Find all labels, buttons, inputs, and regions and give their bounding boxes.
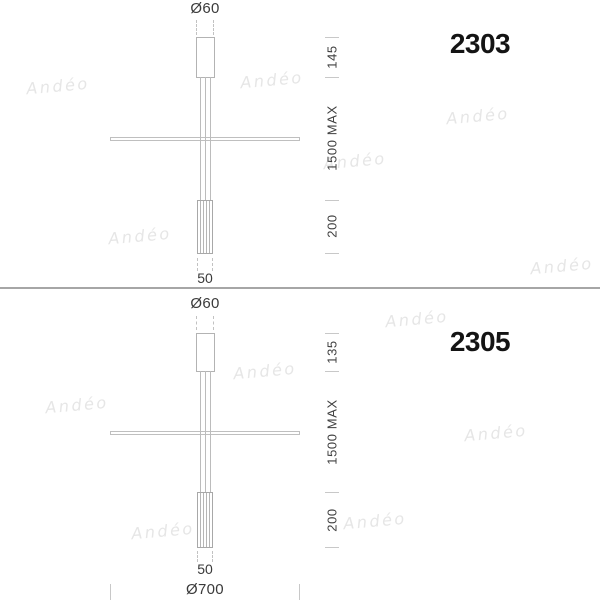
brand-watermark: Andéo	[26, 74, 91, 98]
brand-watermark: Andéo	[131, 519, 196, 543]
suspension-cable	[210, 77, 211, 201]
bar-diameter-label: Ø700	[155, 581, 255, 598]
canopy-height-dim: 145	[325, 45, 340, 69]
brand-watermark: Andéo	[233, 359, 298, 383]
canopy-outline	[196, 37, 215, 78]
brand-watermark: Andéo	[446, 104, 511, 128]
brand-watermark: Andéo	[464, 421, 529, 445]
tube-height-dim: 200	[325, 508, 340, 532]
dim-tick	[325, 492, 339, 493]
brand-watermark: Andéo	[343, 509, 408, 533]
bar-dim-tick	[299, 584, 300, 600]
suspension-length-dim: 1500 MAX	[325, 105, 340, 171]
canopy-outline	[196, 333, 215, 372]
suspension-cable	[205, 77, 206, 201]
suspension-cable	[200, 77, 201, 201]
dim-tick	[325, 200, 339, 201]
brand-watermark: Andéo	[108, 224, 173, 248]
extension-line	[196, 316, 197, 330]
canopy-diameter-label: Ø60	[169, 296, 241, 312]
brand-watermark: Andéo	[240, 68, 305, 92]
model-number: 2305	[420, 328, 540, 356]
suspension-cable	[200, 371, 201, 493]
tube-width-label: 50	[169, 561, 241, 577]
bar-dim-tick	[110, 584, 111, 600]
suspension-cable	[205, 371, 206, 493]
light-tube	[197, 492, 213, 548]
suspension-cable	[210, 371, 211, 493]
brand-watermark: Andéo	[530, 254, 595, 278]
extension-line	[196, 20, 197, 35]
dim-tick	[325, 77, 339, 78]
extension-line	[213, 20, 214, 35]
model-number: 2303	[420, 30, 540, 58]
dim-tick	[325, 333, 339, 334]
dim-tick	[325, 253, 339, 254]
dimension-sheet: AndéoAndéoAndéoAndéoAndéoAndéoAndéoAndéo…	[0, 0, 600, 600]
panel-separator	[0, 287, 600, 289]
extension-line	[213, 316, 214, 330]
brand-watermark: Andéo	[45, 393, 110, 417]
dim-tick	[325, 547, 339, 548]
suspension-length-dim: 1500 MAX	[325, 399, 340, 465]
canopy-diameter-label: Ø60	[169, 1, 241, 17]
light-tube	[197, 200, 213, 254]
watermark-layer: AndéoAndéoAndéoAndéoAndéoAndéoAndéoAndéo…	[0, 0, 600, 600]
tube-height-dim: 200	[325, 214, 340, 238]
canopy-height-dim: 135	[325, 340, 340, 364]
tube-width-label: 50	[169, 270, 241, 286]
dim-tick	[325, 371, 339, 372]
dim-tick	[325, 37, 339, 38]
